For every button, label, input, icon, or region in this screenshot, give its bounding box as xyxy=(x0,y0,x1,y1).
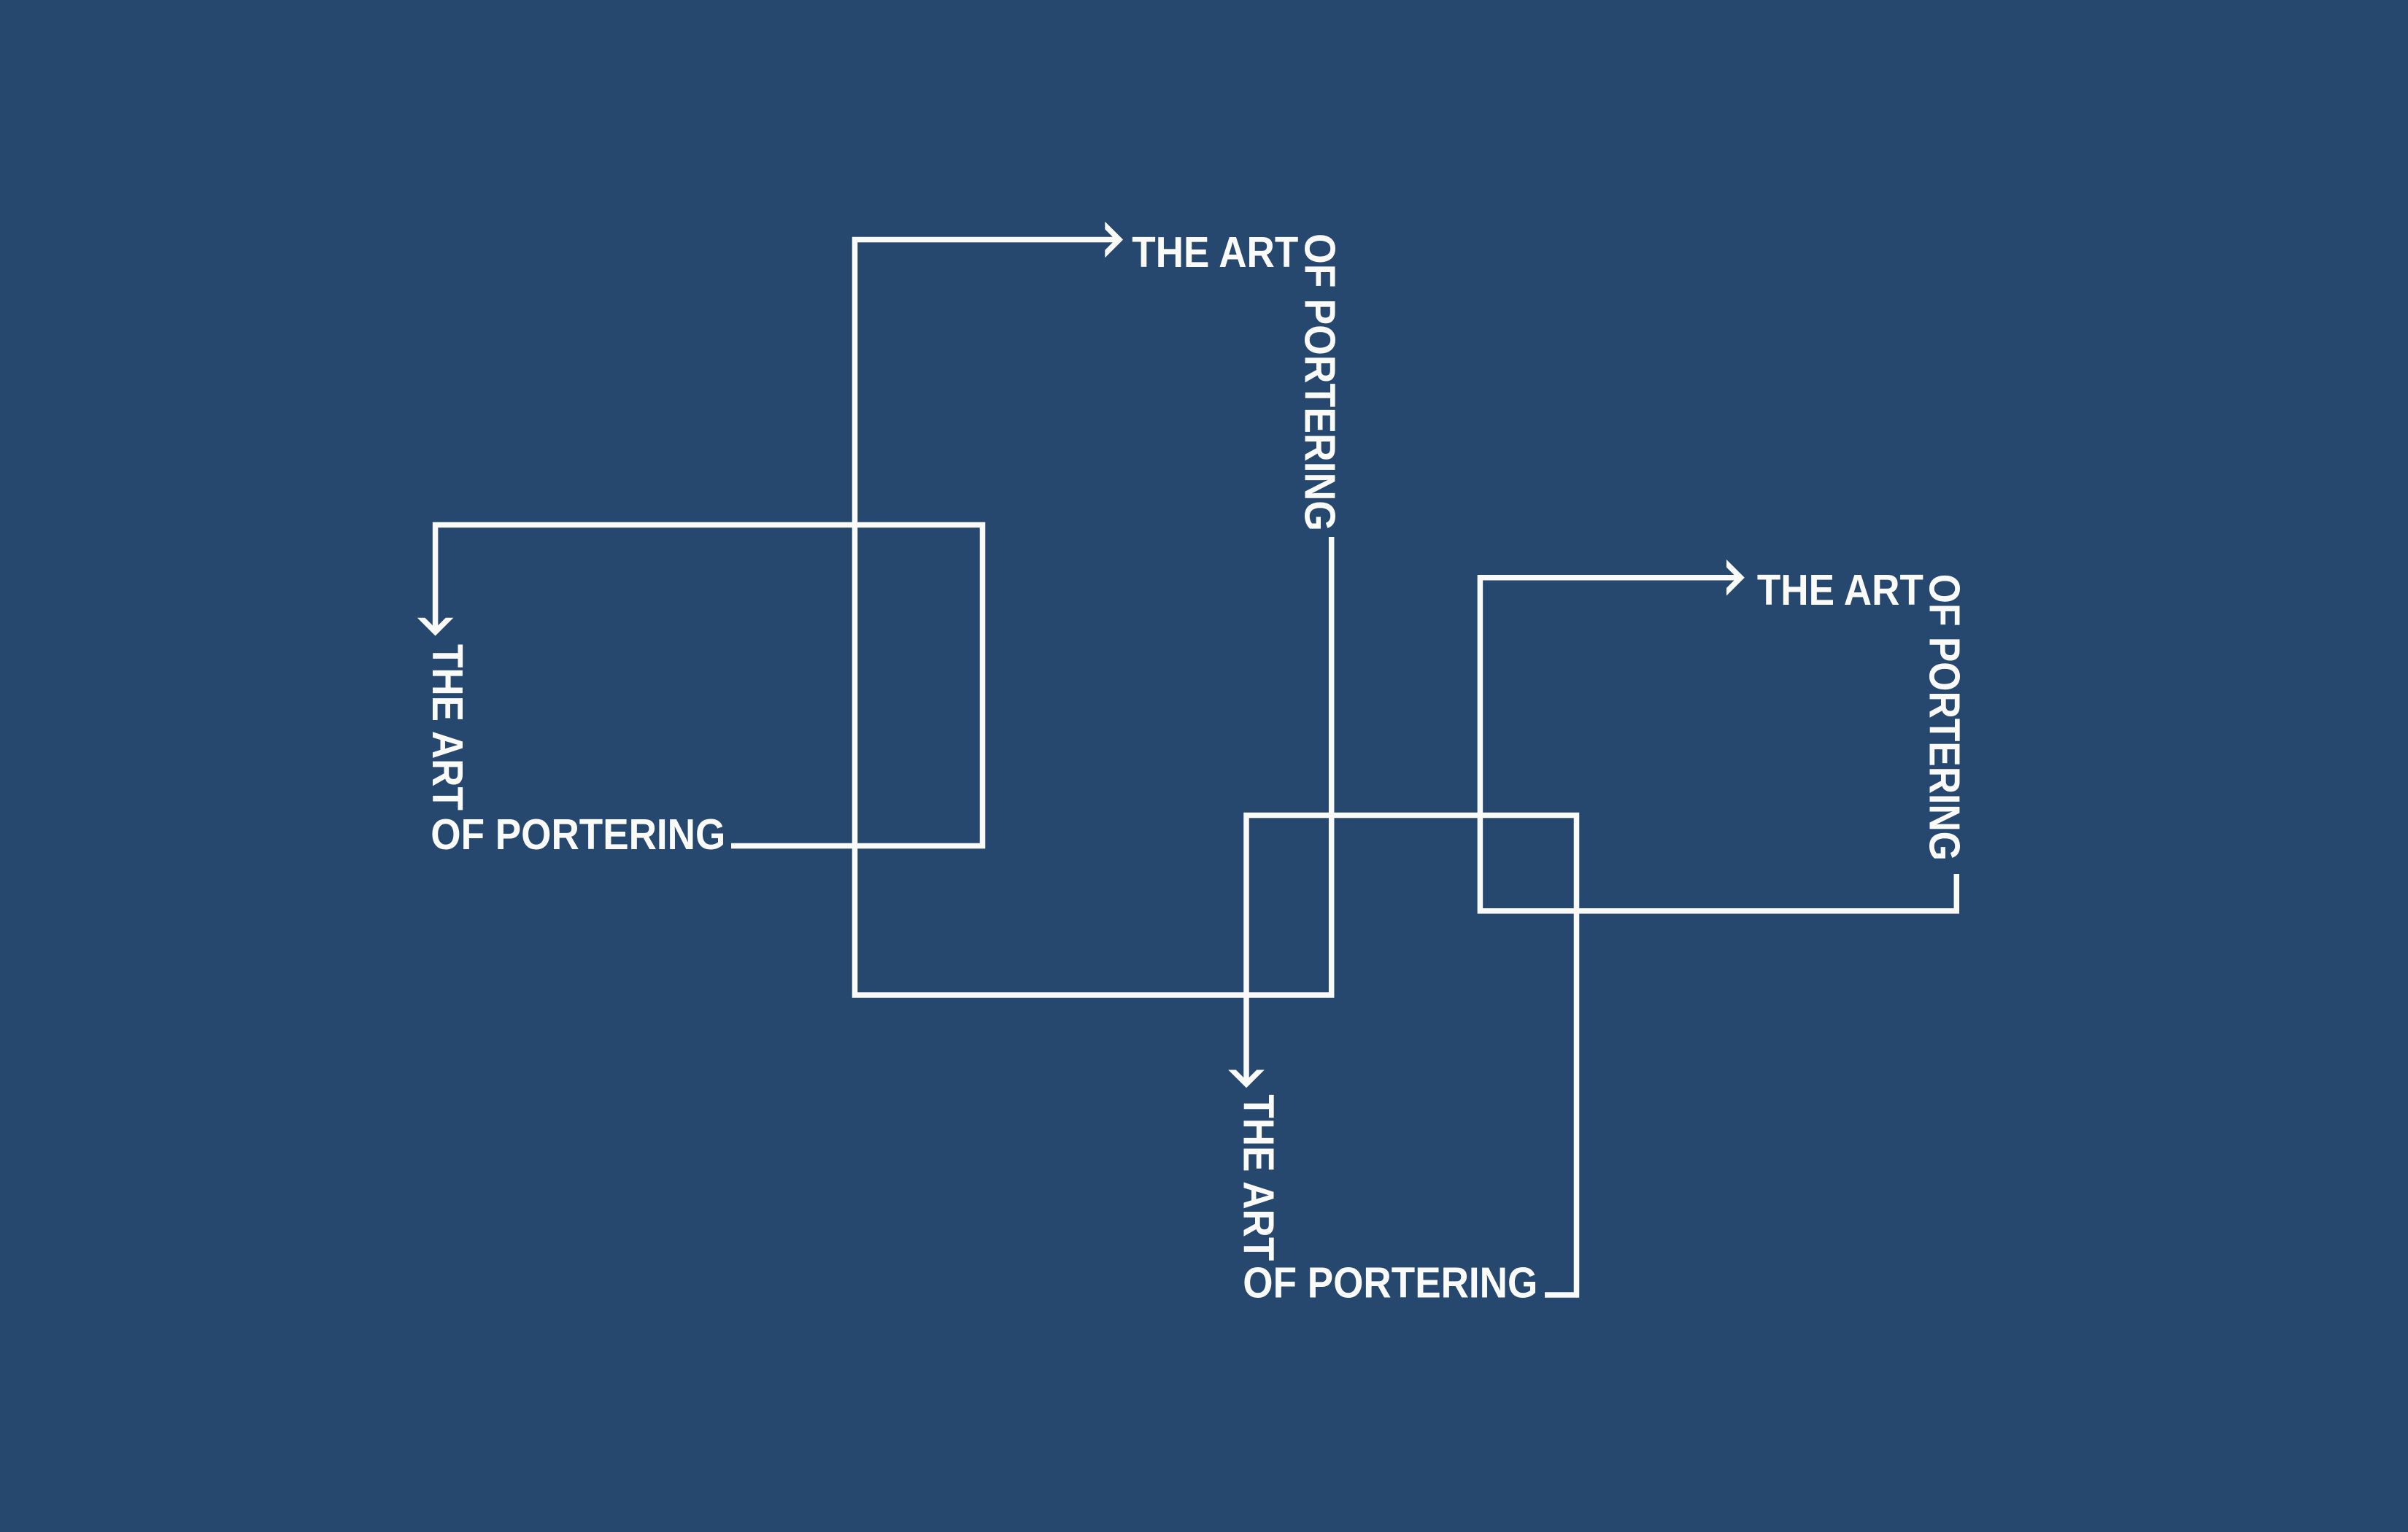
svg-text:OF PORTERING: OF PORTERING xyxy=(1243,1259,1537,1307)
svg-text:OF PORTERING: OF PORTERING xyxy=(1296,233,1343,531)
svg-text:OF PORTERING: OF PORTERING xyxy=(431,811,725,859)
svg-text:OF PORTERING: OF PORTERING xyxy=(1921,574,1968,861)
svg-text:THE ART: THE ART xyxy=(1757,567,1923,614)
svg-text:THE ART: THE ART xyxy=(1132,229,1298,276)
svg-text:THE ART: THE ART xyxy=(423,644,471,811)
svg-text:THE ART: THE ART xyxy=(1234,1094,1281,1261)
